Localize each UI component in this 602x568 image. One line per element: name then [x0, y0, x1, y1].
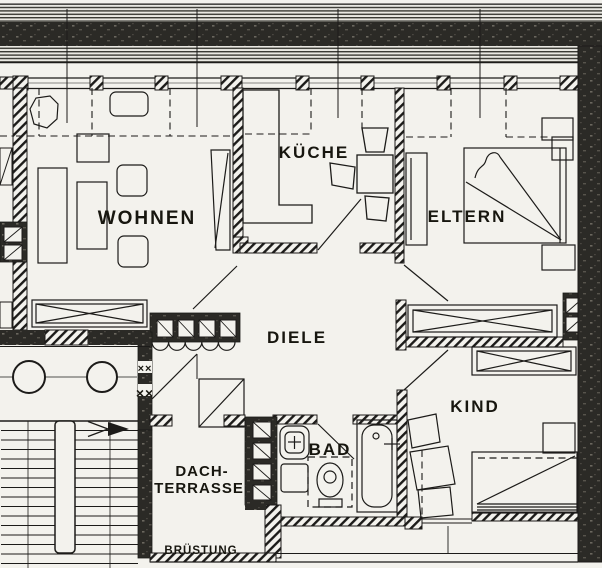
wall-pier: [405, 517, 422, 529]
wall-diele-bad: [273, 415, 317, 424]
wall-stairs-east: [138, 430, 152, 558]
glass-block-wall: [150, 313, 240, 342]
wall-pier: [560, 76, 578, 90]
wall-pier: [504, 76, 517, 90]
wall-pier: [90, 76, 103, 90]
label-bruestung: BRÜSTUNG: [164, 544, 237, 557]
wall-kueche-diele: [360, 243, 404, 253]
round-column: [87, 362, 117, 392]
label-kind: KIND: [450, 397, 500, 416]
wall-bad-kind: [397, 390, 407, 518]
label-dachterrasse-1: DACH-: [175, 463, 228, 480]
label-wohnen: WOHNEN: [98, 208, 197, 229]
wall-landing: [45, 330, 88, 345]
installation-shaft: [245, 417, 277, 505]
wall-landing: [88, 330, 150, 345]
wall-terrace-north: [150, 415, 172, 426]
wall-mark-lower: ××: [136, 385, 154, 401]
wall-pier: [361, 76, 374, 90]
east-wall: [578, 46, 602, 562]
wall-kueche-eltern: [395, 88, 404, 263]
wall-wohnen-kueche: [233, 88, 243, 253]
sideboard: [32, 300, 147, 327]
wall-landing: [0, 330, 45, 345]
wall-pier: [0, 77, 13, 89]
round-column: [13, 361, 45, 393]
wall-pier: [155, 76, 168, 90]
label-diele: DIELE: [267, 328, 327, 347]
wall-diele-eltern: [396, 300, 406, 350]
west-wall: [13, 88, 27, 330]
roof-dark-band: [0, 22, 602, 46]
roof-tiles-upper: [0, 4, 602, 22]
wardrobe-crossed: [472, 347, 576, 375]
label-dachterrasse-2: TERRASSE: [154, 480, 244, 497]
wall-terrace-east: [265, 505, 281, 558]
wall-bad-south: [280, 517, 405, 526]
wall-terrace-north: [224, 415, 245, 426]
wall-eltern-kind: [406, 337, 563, 347]
label-bad: BAD: [309, 440, 352, 459]
wall-pier: [437, 76, 450, 90]
roof-tiles-lower: [0, 46, 602, 62]
label-eltern: ELTERN: [428, 207, 507, 226]
stair-stringer: [55, 421, 75, 553]
wall-joint: [245, 500, 266, 510]
wall-pier: [296, 76, 309, 90]
floor-plan-drawing: WOHNEN KÜCHE ELTERN DIELE KIND BAD DACH-…: [0, 0, 602, 568]
label-kueche: KÜCHE: [279, 143, 349, 162]
wardrobe-crossed: [408, 305, 557, 337]
chimney-west: [0, 222, 27, 262]
wall-mark-upper: ××: [138, 363, 153, 375]
wall-kueche-diele: [240, 243, 317, 253]
north-wall-with-windows: [0, 76, 578, 90]
floor-plan: WOHNEN KÜCHE ELTERN DIELE KIND BAD DACH-…: [0, 0, 602, 568]
